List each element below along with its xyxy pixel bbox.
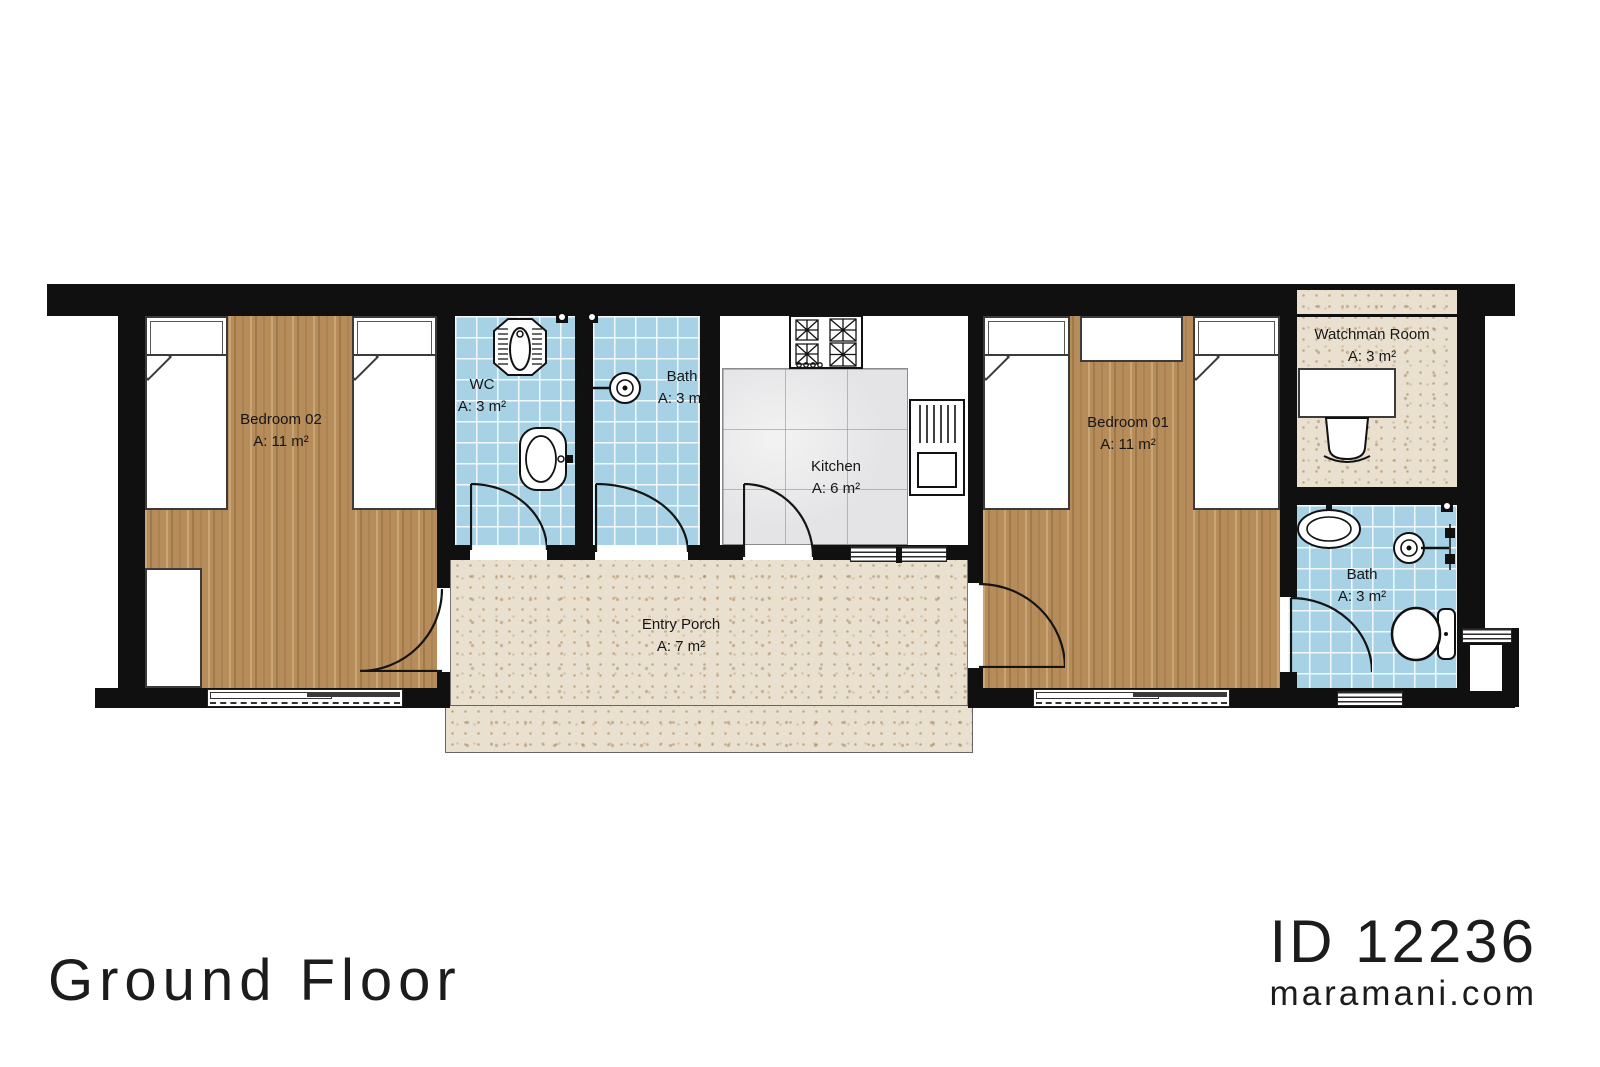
sink-icon — [1295, 498, 1363, 550]
room-area: A: 3 m² — [1314, 346, 1429, 368]
door-swing-icon — [1290, 597, 1372, 672]
bed — [352, 316, 437, 510]
wall-segment — [968, 316, 983, 583]
room-name: Bath — [658, 366, 706, 388]
bed-blanket — [352, 354, 437, 510]
window-bedroom-02 — [207, 689, 403, 707]
window-bedroom-01 — [1033, 689, 1230, 707]
room-area: A: 3 m² — [658, 388, 706, 410]
branding: ID 12236 maramani.com — [1100, 912, 1537, 1016]
room-label-entry-porch: Entry Porch A: 7 m² — [642, 614, 720, 658]
room-area: A: 3 m² — [458, 396, 506, 418]
page-title: Ground Floor — [48, 952, 462, 1010]
entry-porch-step — [445, 705, 973, 753]
wall-segment — [437, 558, 450, 588]
switch-icon — [1441, 500, 1453, 512]
wall-segment — [700, 316, 720, 545]
plan-id: ID 12236 — [1100, 912, 1537, 972]
wall-segment — [437, 672, 450, 688]
room-label-watchman-room: Watchman Room A: 3 m² — [1314, 324, 1429, 368]
stove-icon — [789, 315, 863, 369]
wall-segment — [547, 545, 595, 560]
door-swing-icon — [470, 483, 547, 550]
bed-pillow — [1198, 321, 1275, 357]
room-label-bath-2: Bath A: 3 m² — [1338, 564, 1386, 608]
toilet-icon — [1388, 603, 1458, 665]
niche-window — [1462, 628, 1512, 643]
switch-icon — [556, 311, 568, 323]
wardrobe — [145, 568, 202, 688]
bed-blanket — [983, 354, 1070, 510]
room-label-bath: Bath A: 3 m² — [658, 366, 706, 410]
floor-plan: Bedroom 02 A: 11 m² WC A: 3 m² Bath A: 3… — [0, 0, 1600, 1067]
room-area: A: 11 m² — [1087, 434, 1169, 456]
wall-segment — [575, 316, 593, 560]
door-swing-icon — [359, 588, 443, 672]
door-swing-icon — [743, 483, 813, 557]
door-swing-icon — [978, 583, 1065, 668]
window-kitchen — [850, 546, 947, 562]
bed — [145, 316, 228, 510]
room-label-bedroom-01: Bedroom 01 A: 11 m² — [1087, 412, 1169, 456]
wall-segment — [437, 316, 455, 558]
wall-segment — [1280, 672, 1297, 688]
room-name: Watchman Room — [1314, 324, 1429, 346]
room-name: Bedroom 02 — [240, 409, 322, 431]
room-name: Bedroom 01 — [1087, 412, 1169, 434]
cabinet — [1080, 316, 1183, 362]
switch-icon — [586, 311, 598, 323]
chair-icon — [1314, 416, 1380, 466]
shower-icon — [573, 362, 645, 414]
website-link: maramani.com — [1100, 972, 1537, 1016]
room-name: Entry Porch — [642, 614, 720, 636]
wall-segment — [968, 668, 983, 688]
room-label-wc: WC A: 3 m² — [458, 374, 506, 418]
wall-segment — [1280, 316, 1297, 597]
wall-segment — [688, 545, 743, 560]
niche-interior — [1470, 645, 1502, 691]
room-area: A: 7 m² — [642, 636, 720, 658]
room-area: A: 11 m² — [240, 431, 322, 453]
kitchen-counter-icon — [909, 399, 965, 496]
wall-segment — [1297, 314, 1457, 317]
wall-top — [47, 284, 1515, 316]
wall-left — [118, 316, 145, 690]
door-swing-icon — [595, 483, 688, 552]
room-label-kitchen: Kitchen A: 6 m² — [811, 456, 861, 500]
window-bath-2 — [1337, 691, 1403, 706]
bed — [983, 316, 1070, 510]
room-name: WC — [458, 374, 506, 396]
bed-pillow — [150, 321, 223, 357]
bed-blanket — [1193, 354, 1280, 510]
bed — [1193, 316, 1280, 510]
shower-icon — [1393, 522, 1457, 574]
room-label-bedroom-02: Bedroom 02 A: 11 m² — [240, 409, 322, 453]
bed-blanket — [145, 354, 228, 510]
bed-pillow — [357, 321, 432, 357]
room-area: A: 6 m² — [811, 478, 861, 500]
wall-segment — [437, 545, 470, 560]
desk — [1298, 368, 1396, 418]
bed-pillow — [988, 321, 1065, 357]
room-name: Bath — [1338, 564, 1386, 586]
squat-toilet-icon — [492, 317, 548, 377]
room-area: A: 3 m² — [1338, 586, 1386, 608]
room-name: Kitchen — [811, 456, 861, 478]
